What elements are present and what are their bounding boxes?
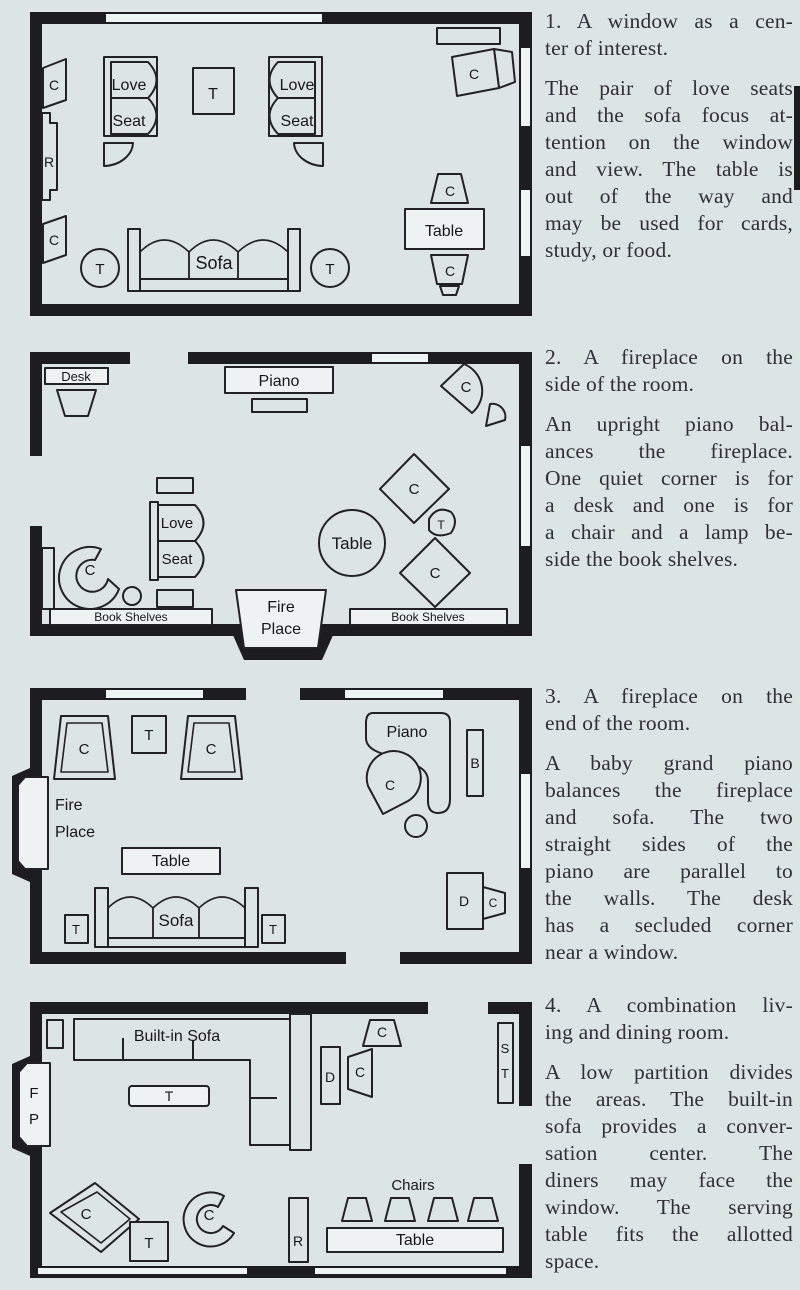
love-seat-label: Love	[112, 77, 147, 94]
table-label: Table	[332, 534, 373, 553]
chair-label: C	[85, 562, 96, 579]
section-4-body: A low partition dividesthe areas. The bu…	[545, 1059, 793, 1275]
dining-chair	[385, 1198, 415, 1221]
lamp	[123, 587, 141, 605]
fireplace	[18, 777, 48, 869]
wall	[30, 12, 42, 316]
text-line: 1. A window as a cen-	[545, 8, 793, 35]
chair-label: C	[204, 1207, 215, 1224]
fireplace-label: Place	[261, 621, 301, 638]
fireplace	[19, 1063, 50, 1146]
section-1-body: The pair of love seatsand the sofa focus…	[545, 75, 793, 264]
wall	[30, 352, 130, 364]
love-seat-label: Seat	[162, 551, 194, 568]
window	[521, 48, 530, 126]
table-label: T	[437, 518, 445, 532]
text-line: A baby grand piano	[545, 750, 793, 777]
text-column: 1. A window as a cen-ter of interest. Th…	[545, 0, 793, 1290]
text-line: may be used for cards,	[545, 210, 793, 237]
text-line: window. The serving	[545, 1194, 793, 1221]
chair-label: C	[355, 1064, 365, 1080]
text-line: ances the fireplace.	[545, 438, 793, 465]
section-2-body: An upright piano bal-ances the fireplace…	[545, 411, 793, 573]
partition	[290, 1014, 311, 1150]
text-line: tention on the window	[545, 129, 793, 156]
desk-label: D	[325, 1069, 335, 1085]
chair-label: C	[385, 777, 395, 793]
chair-label: C	[377, 1024, 387, 1040]
serving-table	[498, 1023, 513, 1103]
end-table	[47, 1020, 63, 1048]
floor-plan-3: Fire Place C T C Table Sofa T T Piano C …	[12, 688, 532, 964]
piano-label: Piano	[387, 724, 428, 741]
table-label: Table	[396, 1232, 434, 1249]
wall	[400, 952, 532, 964]
table-label: Table	[152, 853, 190, 870]
chair-label: C	[79, 741, 90, 758]
chair-label: C	[430, 565, 441, 582]
chair-label: C	[206, 741, 217, 758]
wall	[519, 1002, 532, 1106]
sofa-arm	[95, 888, 108, 947]
floor-plan-4: F P Built-in Sofa T C T C R Chairs Table…	[12, 1002, 532, 1278]
section-4: 4. A combination liv-ing and dining room…	[545, 992, 793, 1275]
radio-label: R	[44, 154, 54, 170]
end-table	[157, 590, 193, 607]
book-page: C R C Love Seat T Love Seat Sofa T T C	[0, 0, 800, 1290]
text-line: A low partition divides	[545, 1059, 793, 1086]
love-seat-label: Love	[280, 77, 315, 94]
text-line: space.	[545, 1248, 793, 1275]
wall	[30, 952, 346, 964]
text-line: has a secluded corner	[545, 912, 793, 939]
text-line: and view. The table is	[545, 156, 793, 183]
wall	[30, 304, 532, 316]
sofa-cushion	[238, 240, 288, 279]
chair-base	[440, 286, 459, 295]
chair-label: C	[489, 896, 498, 910]
text-line: study, or food.	[545, 237, 793, 264]
ottoman	[486, 404, 505, 426]
sofa-arm	[128, 229, 140, 291]
end-table	[157, 478, 193, 493]
window	[521, 446, 530, 546]
window	[372, 354, 428, 362]
section-1: 1. A window as a cen-ter of interest. Th…	[545, 8, 793, 264]
sofa-base	[140, 279, 288, 291]
serving-table-label: T	[501, 1066, 509, 1081]
text-line: diners may face the	[545, 1167, 793, 1194]
sofa-cushion	[140, 240, 189, 279]
floor-plan-2: Fire Place Desk Piano C Love Seat C Tabl…	[30, 352, 532, 660]
wall	[519, 1164, 532, 1278]
sofa-arm	[245, 888, 258, 947]
bench-label: B	[470, 755, 479, 771]
love-seat-label: Seat	[281, 113, 314, 130]
text-line: the areas. The built-in	[545, 1086, 793, 1113]
fireplace-label: P	[29, 1111, 39, 1128]
section-4-heading: 4. A combination liv-ing and dining room…	[545, 992, 793, 1046]
text-line: sofa provides a conver-	[545, 1113, 793, 1140]
chair-label: C	[445, 183, 455, 199]
section-1-heading: 1. A window as a cen-ter of interest.	[545, 8, 793, 62]
text-line: An upright piano bal-	[545, 411, 793, 438]
text-line: straight sides of the	[545, 831, 793, 858]
table-label: T	[325, 261, 334, 278]
text-line: and sofa. The two	[545, 804, 793, 831]
text-line: a chair and a lamp be-	[545, 519, 793, 546]
radio-label: R	[293, 1233, 303, 1249]
chair-label: C	[461, 379, 472, 396]
section-3-body: A baby grand pianobalances the fireplace…	[545, 750, 793, 966]
text-line: 2. A fireplace on the	[545, 344, 793, 371]
section-2: 2. A fireplace on theside of the room. A…	[545, 344, 793, 573]
text-line: side the book shelves.	[545, 546, 793, 573]
table-label: T	[208, 86, 218, 103]
fireplace-label: F	[29, 1085, 38, 1102]
text-line: a desk and one is for	[545, 492, 793, 519]
chair-label: C	[409, 481, 420, 498]
text-line: table fits the allotted	[545, 1221, 793, 1248]
chair-label: C	[469, 66, 479, 82]
window	[38, 1268, 247, 1274]
love-seat-back	[150, 502, 158, 580]
dining-chair	[428, 1198, 458, 1221]
text-line: end of the room.	[545, 710, 793, 737]
text-line: One quiet corner is for	[545, 465, 793, 492]
text-line: side of the room.	[545, 371, 793, 398]
serving-table-label: S	[501, 1041, 510, 1056]
table-label: T	[269, 922, 277, 937]
text-line: and the sofa focus at-	[545, 102, 793, 129]
fireplace-label: Fire	[267, 599, 295, 616]
door-swing	[294, 143, 323, 166]
desk-label: D	[459, 893, 469, 909]
wall	[30, 1002, 428, 1014]
sofa-cushion	[199, 897, 245, 938]
window	[521, 774, 530, 868]
window	[345, 690, 443, 698]
text-line: The pair of love seats	[545, 75, 793, 102]
chair-label: C	[49, 232, 59, 248]
sofa-arm	[288, 229, 300, 291]
book-shelves-label: Book Shelves	[391, 610, 464, 624]
sofa-label: Sofa	[195, 253, 233, 273]
book-shelves-return	[42, 548, 54, 609]
text-line: sation center. The	[545, 1140, 793, 1167]
piano-label: Piano	[259, 373, 300, 390]
table-label: T	[144, 727, 153, 744]
window	[521, 190, 530, 256]
sofa-cushion	[108, 897, 153, 938]
wall	[188, 352, 532, 364]
table-label: T	[144, 1235, 153, 1252]
table-label: T	[165, 1088, 174, 1104]
book-shelves-label: Book Shelves	[94, 610, 167, 624]
section-2-heading: 2. A fireplace on theside of the room.	[545, 344, 793, 398]
text-line: 4. A combination liv-	[545, 992, 793, 1019]
dining-chair	[342, 1198, 372, 1221]
wall-table	[437, 28, 500, 44]
door-swing	[104, 143, 133, 166]
piano-bench	[252, 399, 307, 412]
built-in-sofa-label: Built-in Sofa	[134, 1028, 220, 1045]
text-line: ter of interest.	[545, 35, 793, 62]
desk-label: Desk	[61, 369, 91, 384]
dining-chair	[468, 1198, 498, 1221]
desk-chair	[57, 390, 96, 416]
text-line: balances the fireplace	[545, 777, 793, 804]
text-line: the walls. The desk	[545, 885, 793, 912]
wall	[30, 352, 42, 456]
wall	[30, 526, 42, 636]
table-label: T	[72, 922, 80, 937]
text-line: piano are parallel to	[545, 858, 793, 885]
table-label: Table	[425, 223, 463, 240]
chair-label: C	[49, 77, 59, 93]
fireplace-label: Fire	[55, 797, 83, 814]
section-3: 3. A fireplace on theend of the room. A …	[545, 683, 793, 966]
window	[106, 690, 203, 698]
section-3-heading: 3. A fireplace on theend of the room.	[545, 683, 793, 737]
text-line: ing and dining room.	[545, 1019, 793, 1046]
chair-label: C	[81, 1206, 92, 1223]
floor-plan-1: C R C Love Seat T Love Seat Sofa T T C	[30, 12, 532, 316]
window	[106, 14, 322, 22]
page-edge-mark	[794, 86, 800, 190]
text-line: 3. A fireplace on the	[545, 683, 793, 710]
love-seat-label: Seat	[113, 113, 146, 130]
love-seat-label: Love	[161, 515, 194, 532]
piano-stool	[405, 815, 427, 837]
sofa-base	[108, 938, 245, 947]
text-line: out of the way and	[545, 183, 793, 210]
sofa-label: Sofa	[159, 911, 195, 930]
radio-cabinet	[289, 1198, 308, 1262]
table-label: T	[95, 261, 104, 278]
fireplace-label: Place	[55, 824, 95, 841]
chairs-label: Chairs	[391, 1177, 434, 1194]
window	[315, 1268, 506, 1274]
chair-label: C	[445, 263, 455, 279]
text-line: near a window.	[545, 939, 793, 966]
